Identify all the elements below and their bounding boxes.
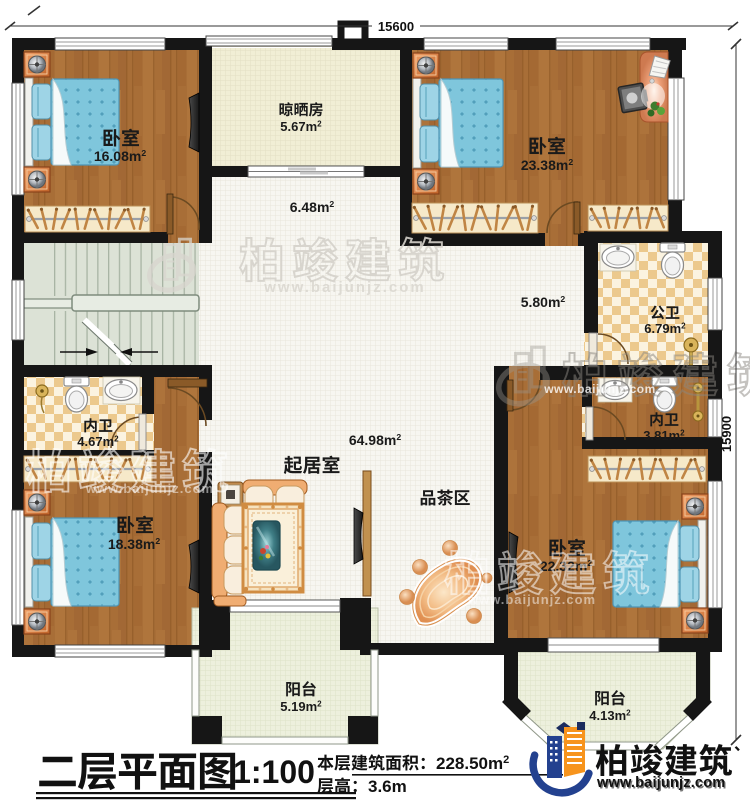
svg-text:6.79m2: 6.79m2 bbox=[644, 321, 686, 336]
svg-text:www.baijunjz.com: www.baijunjz.com bbox=[263, 279, 425, 296]
svg-text:6.48m2: 6.48m2 bbox=[290, 199, 335, 215]
svg-text:3.81m2: 3.81m2 bbox=[643, 428, 685, 443]
svg-text:23.38m2: 23.38m2 bbox=[521, 157, 573, 173]
svg-text:www.baijunjz.com: www.baijunjz.com bbox=[596, 775, 725, 791]
svg-text:www.baijunjz.com: www.baijunjz.com bbox=[543, 382, 656, 396]
svg-text:3.6m: 3.6m bbox=[368, 777, 407, 796]
svg-text:18.38m2: 18.38m2 bbox=[108, 536, 160, 552]
svg-text:16.08m2: 16.08m2 bbox=[94, 148, 146, 164]
svg-text:4.67m2: 4.67m2 bbox=[77, 434, 119, 449]
svg-text:1:100: 1:100 bbox=[233, 754, 315, 790]
svg-text:15600: 15600 bbox=[378, 19, 414, 34]
svg-text:5.80m2: 5.80m2 bbox=[521, 294, 566, 310]
svg-text:4.13m2: 4.13m2 bbox=[589, 708, 631, 723]
svg-text:5.67m2: 5.67m2 bbox=[280, 119, 322, 134]
svg-text:15900: 15900 bbox=[719, 416, 734, 452]
svg-text:64.98m2: 64.98m2 bbox=[349, 432, 401, 448]
svg-text:228.50m2: 228.50m2 bbox=[436, 754, 509, 773]
svg-text:www.baijunjz.com: www.baijunjz.com bbox=[467, 592, 596, 607]
svg-text:5.19m2: 5.19m2 bbox=[280, 699, 322, 714]
svg-text:www.baijunjz.com: www.baijunjz.com bbox=[85, 481, 214, 496]
